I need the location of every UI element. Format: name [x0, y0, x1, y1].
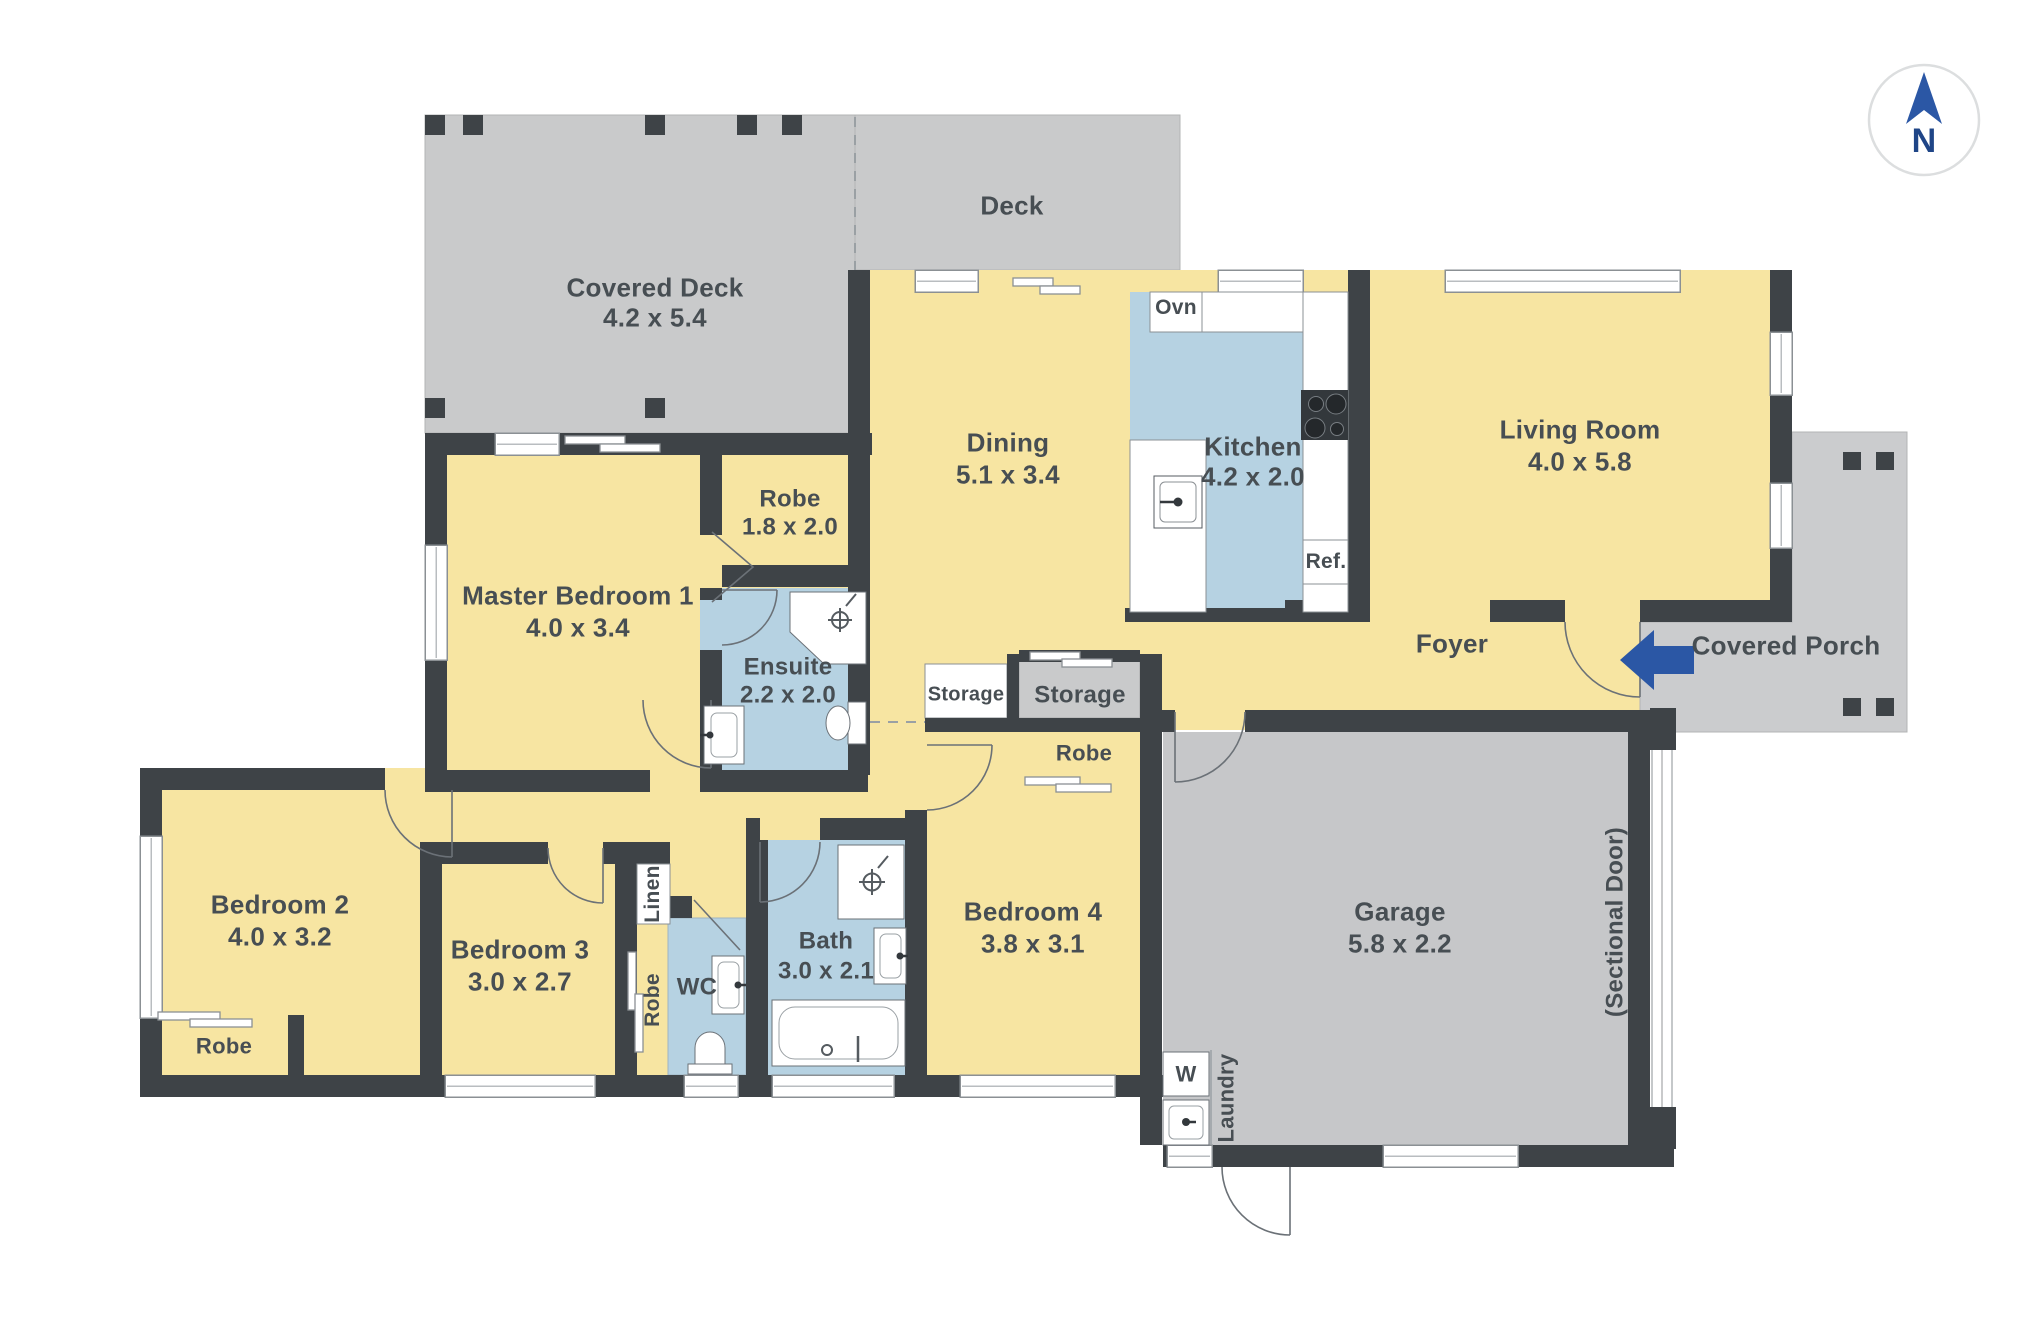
label-fridge: Ref.	[1306, 551, 1347, 573]
room-dims-ensuite: 2.2 x 2.0	[740, 682, 836, 707]
room-label-bed2: Bedroom 2	[211, 891, 350, 918]
room-label-bed3: Bedroom 3	[451, 936, 590, 963]
room-label-covered-deck: Covered Deck	[566, 274, 743, 301]
sectional-post-top	[1650, 708, 1676, 750]
sliding-door-icon	[1040, 286, 1080, 294]
sliding-door-icon	[1013, 278, 1053, 286]
bathtub-icon	[772, 1000, 905, 1066]
room-dims-bed4: 3.8 x 3.1	[981, 930, 1085, 957]
robe-wall-stub	[288, 1015, 304, 1075]
label-oven: Ovn	[1155, 297, 1197, 319]
label-sectional-door: (Sectional Door)	[1602, 827, 1627, 1017]
room-label-garage: Garage	[1354, 898, 1445, 925]
sliding-door-icon	[600, 444, 660, 452]
room-label-dining: Dining	[967, 429, 1050, 456]
sectional-post-bottom	[1650, 1107, 1676, 1149]
ensuite-vanity-icon	[700, 706, 744, 764]
room-label-robe-master: Robe	[759, 486, 820, 511]
room-label-bed4: Bedroom 4	[964, 898, 1103, 925]
label-storage-small: Storage	[928, 685, 1005, 706]
room-label-master: Master Bedroom 1	[462, 582, 694, 609]
room-label-ensuite: Ensuite	[744, 654, 833, 679]
room-label-kitchen: Kitchen	[1204, 433, 1301, 460]
compass-north-label: N	[1912, 124, 1937, 160]
hall-patch	[865, 718, 925, 770]
label-laundry: Laundry	[1214, 1054, 1237, 1143]
room-label-deck: Deck	[980, 192, 1043, 219]
sliding-door-icon	[565, 436, 625, 444]
room-label-living: Living Room	[1500, 416, 1661, 443]
room-dims-robe-master: 1.8 x 2.0	[742, 514, 838, 539]
room-dims-garage: 5.8 x 2.2	[1348, 930, 1452, 957]
laundry-door-arc	[1222, 1167, 1290, 1235]
bath-shower-icon	[838, 845, 904, 919]
label-robe-bed2: Robe	[196, 1034, 252, 1057]
kitchen-sink-icon	[1154, 476, 1202, 528]
sliding-door-icon	[1056, 784, 1111, 792]
room-dims-master: 4.0 x 3.4	[526, 614, 630, 641]
room-dims-kitchen: 4.2 x 2.0	[1201, 463, 1305, 490]
room-dims-dining: 5.1 x 3.4	[956, 461, 1060, 488]
room-dims-bed3: 3.0 x 2.7	[468, 968, 572, 995]
room-dims-covered-deck: 4.2 x 5.4	[603, 304, 707, 331]
sliding-door-icon	[190, 1019, 252, 1027]
label-storage-large: Storage	[1034, 682, 1125, 707]
floor-plan: Covered Deck 4.2 x 5.4 Deck Master Bedro…	[0, 0, 2044, 1324]
room-dims-living: 4.0 x 5.8	[1528, 448, 1632, 475]
label-washer: W	[1175, 1062, 1196, 1085]
room-label-porch: Covered Porch	[1692, 632, 1881, 659]
room-dims-bed2: 4.0 x 3.2	[228, 923, 332, 950]
label-wc: WC	[677, 974, 718, 999]
room-label-foyer: Foyer	[1416, 630, 1488, 657]
label-robe-bed3: Robe	[642, 973, 664, 1027]
room-label-bath: Bath	[799, 928, 854, 953]
bath-vanity-icon	[874, 928, 908, 984]
label-linen: Linen	[642, 865, 664, 923]
sliding-door-icon	[1062, 659, 1112, 667]
label-robe-bed4: Robe	[1056, 741, 1112, 764]
room-dims-bath: 3.0 x 2.1	[778, 958, 874, 983]
